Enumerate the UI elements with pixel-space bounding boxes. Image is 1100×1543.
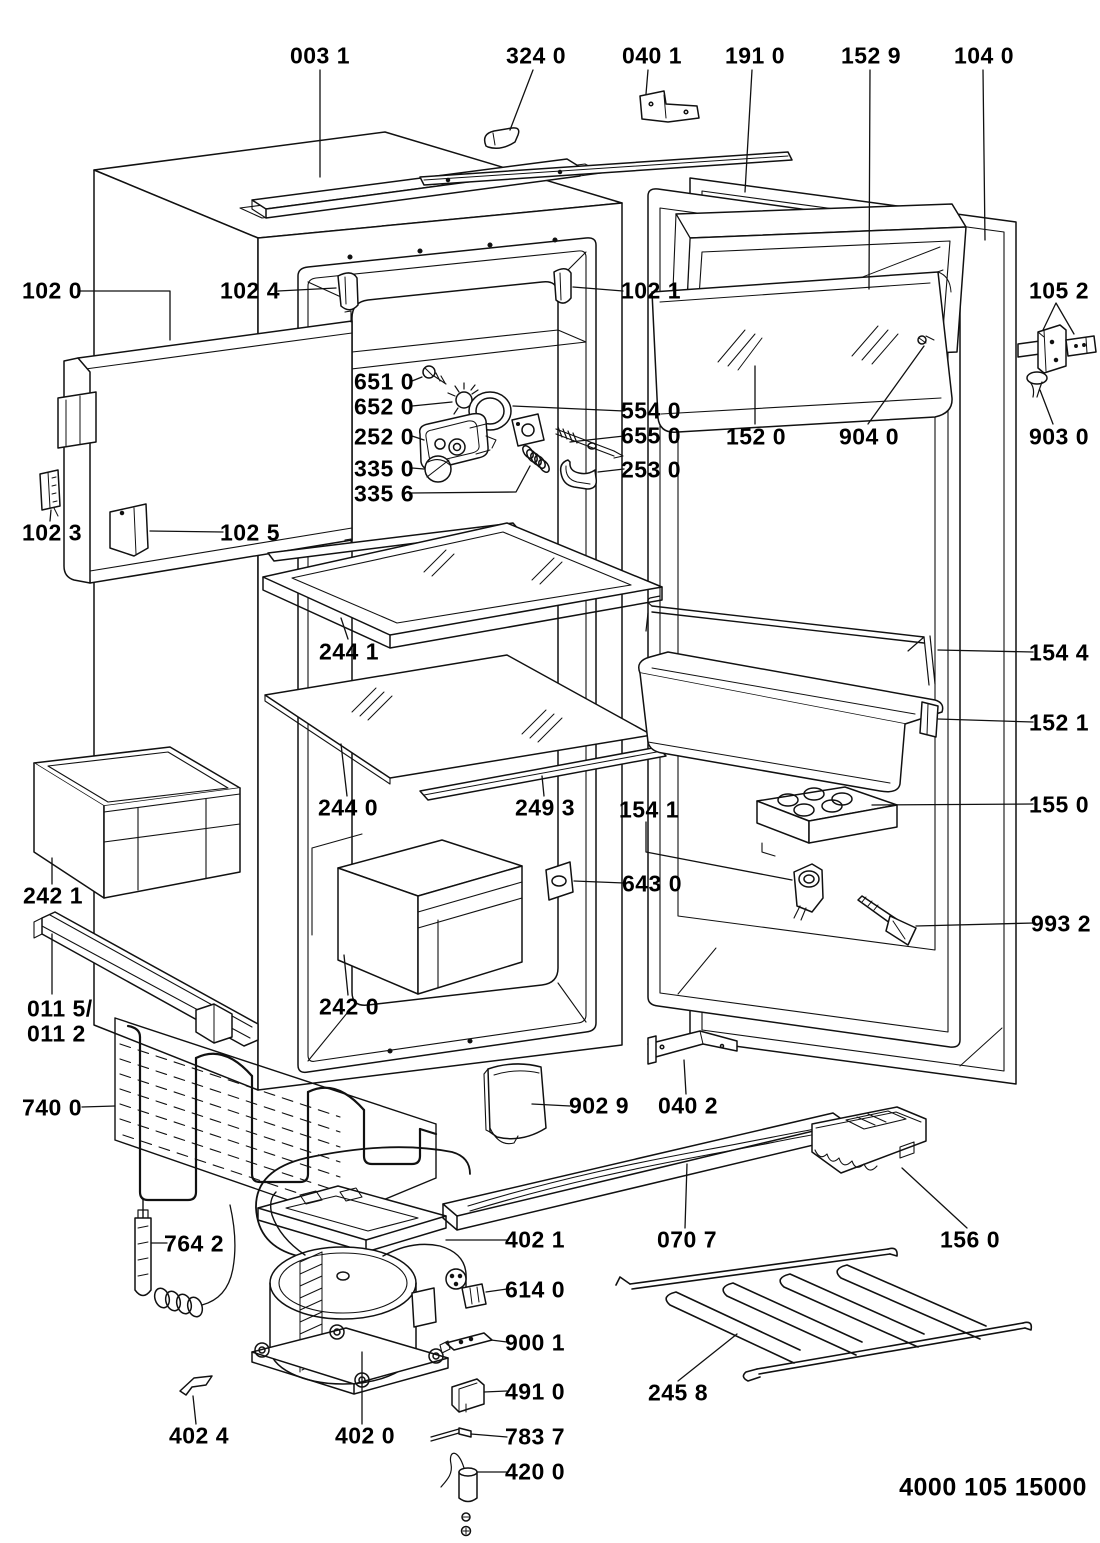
callout-993-2: 993 2 <box>1031 913 1091 936</box>
heater-serpentine-245-8 <box>616 1248 1031 1381</box>
rivet-903 <box>1027 372 1047 397</box>
callout-491-0: 491 0 <box>505 1381 565 1404</box>
clip-402-4 <box>180 1376 212 1395</box>
callout-152-0: 152 0 <box>726 426 786 449</box>
callout-655-0: 655 0 <box>621 425 681 448</box>
callout-102-5: 102 5 <box>220 522 280 545</box>
callout-152-9: 152 9 <box>841 45 901 68</box>
callout-102-0: 102 0 <box>22 280 82 303</box>
leader-740-0 <box>82 1106 115 1107</box>
glass-flap <box>652 272 952 432</box>
diagram-drawing <box>0 0 1100 1543</box>
callout-902-9: 902 9 <box>569 1095 629 1118</box>
callout-324-0: 324 0 <box>506 45 566 68</box>
compressor-bracket-402-1 <box>258 1186 446 1252</box>
callout-420-0: 420 0 <box>505 1461 565 1484</box>
callout-011-2: 011 2 <box>27 1023 86 1046</box>
door-latch-105-2 <box>1018 325 1096 373</box>
leader-402-4 <box>193 1396 196 1424</box>
callout-154-4: 154 4 <box>1029 642 1089 665</box>
interior-clip-left-102-4 <box>338 273 358 310</box>
capacitor-420-0 <box>441 1453 477 1535</box>
leader-614-0 <box>486 1289 507 1292</box>
leader-156-0 <box>902 1168 967 1228</box>
board-900-1 <box>440 1333 492 1353</box>
clip-324 <box>485 128 519 148</box>
cover-491-0 <box>452 1379 484 1412</box>
pin-783-7 <box>431 1428 471 1441</box>
knob-335-0 <box>425 456 451 482</box>
callout-102-1: 102 1 <box>621 280 681 303</box>
leader-070-7 <box>685 1164 687 1228</box>
leader-191-0 <box>745 70 752 192</box>
callout-191-0: 191 0 <box>725 45 785 68</box>
leader-783-7 <box>471 1434 507 1437</box>
callout-904-0: 904 0 <box>839 426 899 449</box>
callout-614-0: 614 0 <box>505 1279 565 1302</box>
leader-491-0 <box>484 1391 507 1392</box>
exploded-parts-diagram: 003 1 324 0 040 1 191 0 152 9 104 0 102 … <box>0 0 1100 1543</box>
crisper-drawer <box>34 747 240 898</box>
callout-252-0: 252 0 <box>354 426 414 449</box>
callout-244-0: 244 0 <box>318 797 378 820</box>
callout-764-2: 764 2 <box>164 1233 224 1256</box>
callout-156-0: 156 0 <box>940 1229 1000 1252</box>
callout-102-4: 102 4 <box>220 280 280 303</box>
callout-249-3: 249 3 <box>515 797 575 820</box>
callout-783-7: 783 7 <box>505 1426 565 1449</box>
leader-040-1 <box>646 70 648 94</box>
callout-402-1: 402 1 <box>505 1229 565 1252</box>
callout-651-0: 651 0 <box>354 371 414 394</box>
callout-244-1: 244 1 <box>319 641 379 664</box>
callout-011-5: 011 5/ <box>27 998 93 1021</box>
callout-155-0: 155 0 <box>1029 794 1089 817</box>
callout-102-3: 102 3 <box>22 522 82 545</box>
callout-040-1: 040 1 <box>622 45 682 68</box>
corner-block-102-5 <box>110 504 148 556</box>
hinge-part-102-3 <box>40 470 60 516</box>
callout-402-4: 402 4 <box>169 1425 229 1448</box>
callout-402-0: 402 0 <box>335 1425 395 1448</box>
callout-242-0: 242 0 <box>319 996 379 1019</box>
callout-903-0: 903 0 <box>1029 426 1089 449</box>
drier-filter <box>135 1200 235 1319</box>
callout-335-6: 335 6 <box>354 483 414 506</box>
callout-740-0: 740 0 <box>22 1097 82 1120</box>
document-number: 4000 105 15000 <box>899 1476 1087 1501</box>
bracket-040-1 <box>640 91 699 122</box>
callout-104-0: 104 0 <box>954 45 1014 68</box>
callout-154-1: 154 1 <box>619 799 679 822</box>
leader-245-8 <box>678 1334 737 1381</box>
callout-152-1: 152 1 <box>1029 712 1089 735</box>
callout-253-0: 253 0 <box>621 459 681 482</box>
callout-040-2: 040 2 <box>658 1095 718 1118</box>
callout-070-7: 070 7 <box>657 1229 717 1252</box>
leader-040-2 <box>684 1060 686 1094</box>
callout-003-1: 003 1 <box>290 45 350 68</box>
callout-242-1: 242 1 <box>23 885 83 908</box>
callout-652-0: 652 0 <box>354 396 414 419</box>
callout-554-0: 554 0 <box>621 400 681 423</box>
callout-643-0: 643 0 <box>622 873 682 896</box>
leader-104-0 <box>983 70 985 240</box>
callout-900-1: 900 1 <box>505 1332 565 1355</box>
callout-335-0: 335 0 <box>354 458 414 481</box>
callout-105-2: 105 2 <box>1029 280 1089 303</box>
callout-245-8: 245 8 <box>648 1382 708 1405</box>
interior-clip-right-102-1 <box>554 269 571 303</box>
leader-324-0 <box>510 70 533 130</box>
leader-903-0 <box>1040 390 1053 424</box>
